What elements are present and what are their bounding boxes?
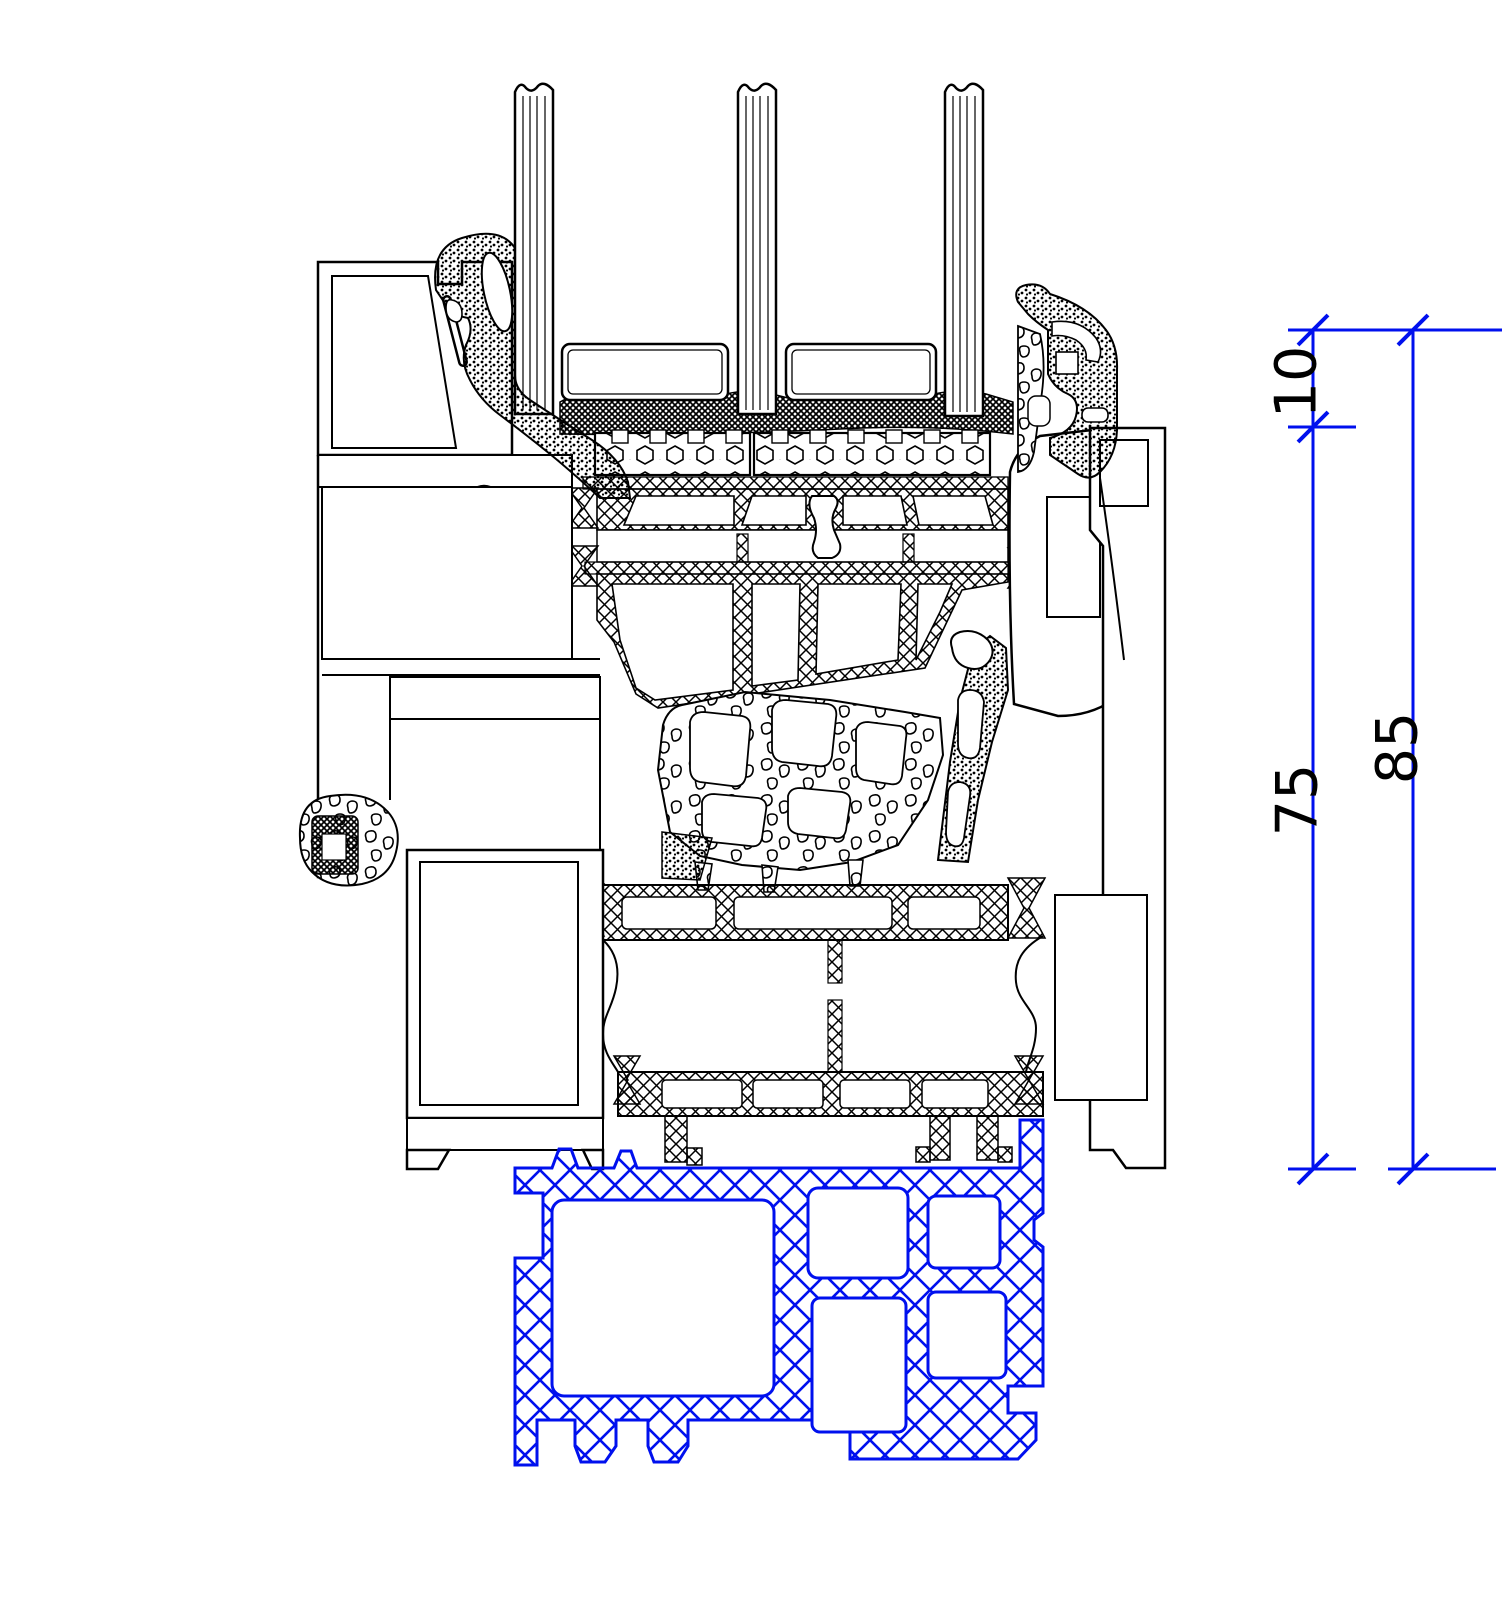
- frame-bottom-band: [407, 1118, 603, 1150]
- chamber: [816, 584, 901, 674]
- chamber: [322, 487, 572, 659]
- dim-label-10: 10: [1264, 346, 1330, 419]
- foam-hole: [690, 712, 750, 786]
- chamber: [624, 496, 734, 525]
- chamber: [843, 496, 907, 525]
- chamber: [742, 496, 806, 525]
- hatch-stub: [737, 534, 748, 562]
- foam-hole: [856, 722, 906, 784]
- insulating-bar-mid: [597, 530, 1008, 562]
- drawing-canvas: 10 75 85: [0, 0, 1508, 1624]
- chamber: [922, 1080, 988, 1108]
- gasket-left-knob: [300, 795, 398, 886]
- cap-slot: [1082, 408, 1108, 422]
- glass-pane-1: [515, 84, 553, 414]
- hatch-strip: [585, 562, 1008, 574]
- glass-pane-3: [945, 84, 983, 416]
- foam-hole: [772, 700, 836, 766]
- chamber: [753, 1080, 823, 1108]
- hatch-stub: [903, 534, 914, 562]
- chamber: [390, 677, 600, 719]
- chamber: [908, 897, 980, 929]
- chamber: [662, 1080, 742, 1108]
- center-web: [828, 1000, 842, 1072]
- frame-lower-block: [407, 850, 603, 1118]
- chamber: [840, 1080, 910, 1108]
- chamber: [752, 584, 800, 686]
- foam-foot: [848, 860, 863, 886]
- gasket-core-hole: [322, 834, 346, 860]
- chamber: [1055, 895, 1147, 1100]
- threshold-chamber: [928, 1196, 1000, 1268]
- threshold-chamber: [928, 1292, 1006, 1378]
- dim-label-85: 85: [1365, 712, 1431, 785]
- foam-hole: [788, 788, 850, 838]
- chamber: [622, 897, 716, 929]
- dim-label-75: 75: [1265, 764, 1331, 837]
- hatch-strip: [583, 477, 1008, 489]
- cap-hole: [1056, 352, 1078, 374]
- glazing-spacer-left: [562, 344, 728, 400]
- chamber: [913, 496, 993, 525]
- cap-clip: [1028, 396, 1050, 426]
- chamber: [734, 897, 892, 929]
- threshold-profile: [515, 1120, 1043, 1465]
- glazing-spacer-right: [786, 344, 936, 400]
- frame-divider: [318, 455, 572, 487]
- glazing-bridge: [595, 430, 990, 475]
- threshold-chamber: [812, 1298, 906, 1432]
- glass-pane-2: [738, 84, 776, 414]
- threshold-chamber: [808, 1188, 908, 1278]
- center-web: [828, 940, 842, 983]
- threshold-chamber: [552, 1200, 774, 1396]
- bracket-slot: [958, 690, 984, 758]
